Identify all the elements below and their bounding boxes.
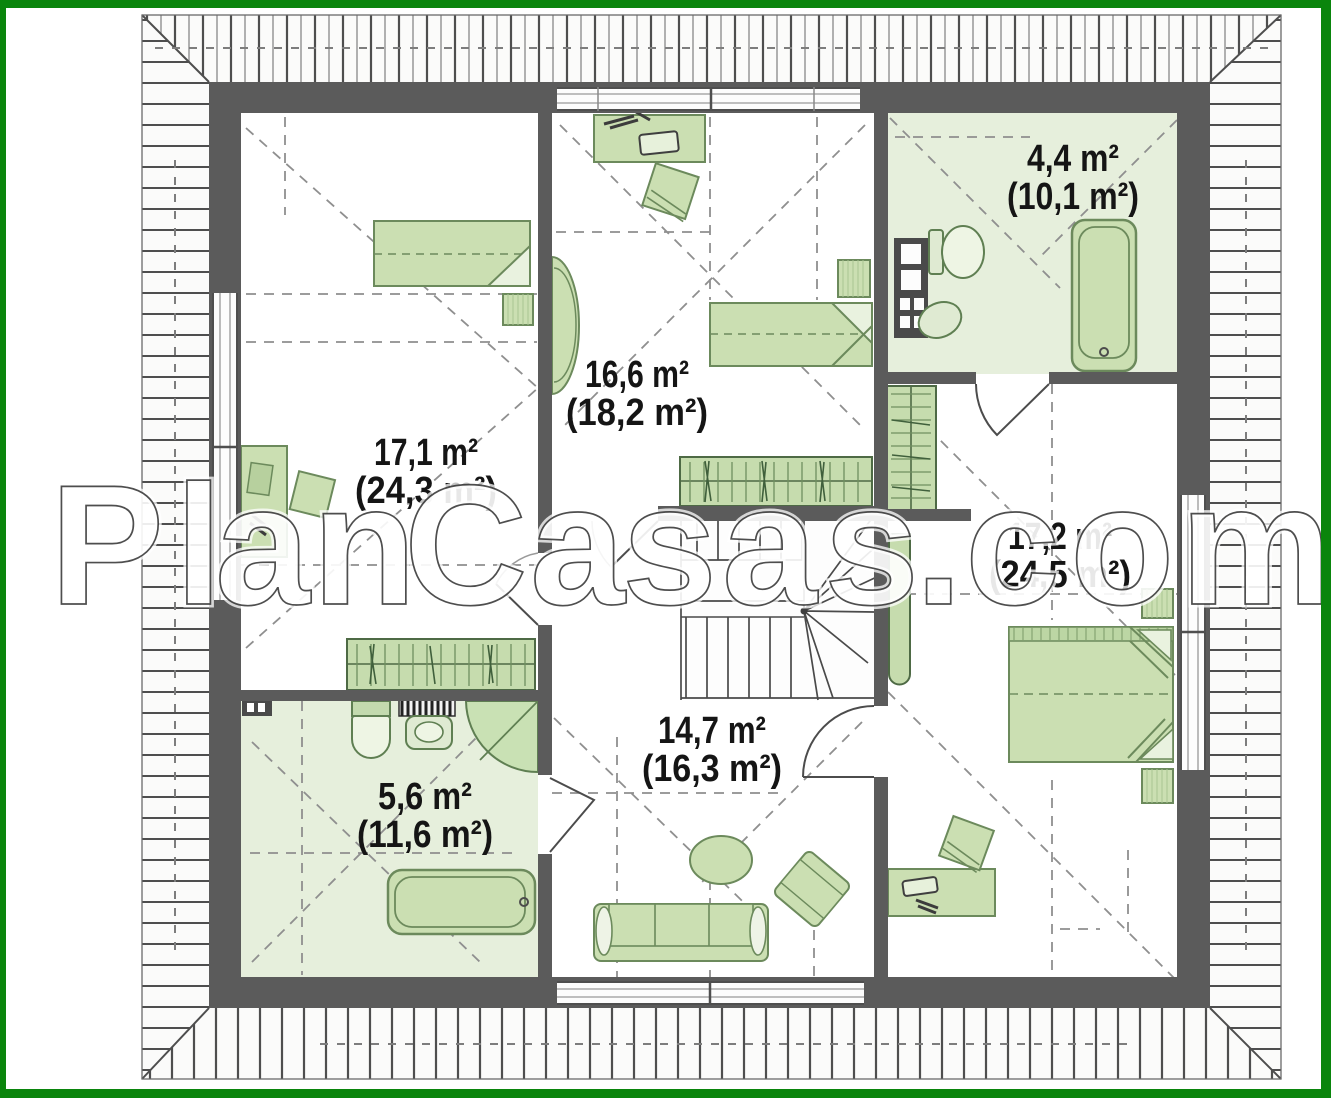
svg-text:(16,3 m²): (16,3 m²) (642, 748, 782, 790)
svg-text:PlanCasas.com: PlanCasas.com (50, 450, 1331, 641)
svg-text:14,7 m²: 14,7 m² (658, 710, 766, 752)
svg-text:(11,6 m²): (11,6 m²) (357, 814, 493, 856)
svg-text:16,6 m²: 16,6 m² (585, 354, 689, 396)
svg-text:5,6 m²: 5,6 m² (378, 776, 472, 818)
svg-text:4,4 m²: 4,4 m² (1027, 138, 1119, 180)
svg-text:(10,1 m²): (10,1 m²) (1007, 176, 1139, 218)
svg-text:(18,2 m²): (18,2 m²) (566, 392, 708, 434)
